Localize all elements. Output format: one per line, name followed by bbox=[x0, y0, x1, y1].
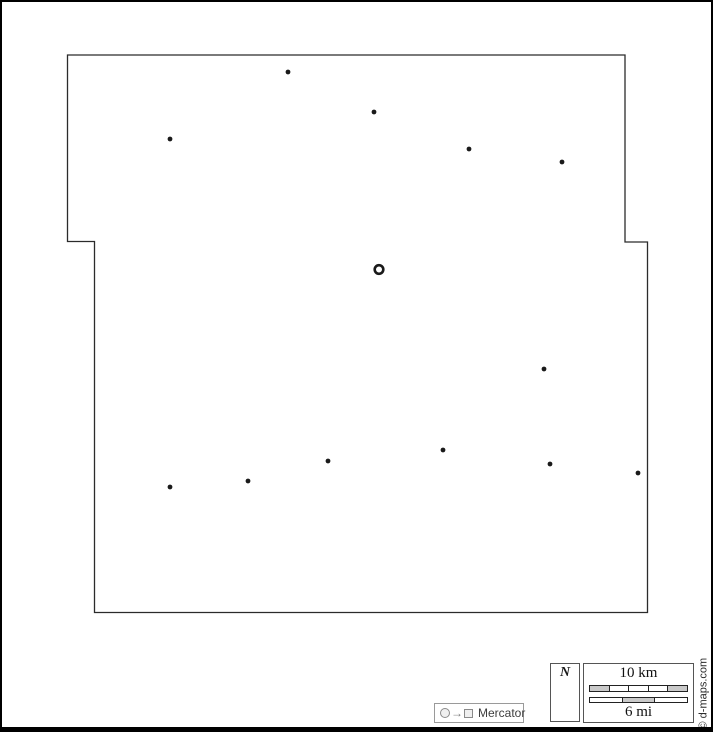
town-dot bbox=[636, 471, 641, 476]
scale-bar-segment bbox=[648, 686, 668, 691]
scale-km-bar bbox=[589, 685, 688, 692]
scale-bar-segment bbox=[654, 698, 687, 702]
county-boundary bbox=[68, 55, 648, 613]
scale-mi-label: 6 mi bbox=[584, 704, 693, 721]
compass-box: N bbox=[550, 663, 580, 722]
town-dot bbox=[372, 110, 377, 115]
compass-north-label: N bbox=[551, 665, 579, 681]
town-dot bbox=[548, 462, 553, 467]
scale-bar-segment bbox=[667, 686, 687, 691]
scale-bar-segment bbox=[609, 686, 629, 691]
town-dot bbox=[441, 448, 446, 453]
scale-bar-segment bbox=[628, 686, 648, 691]
scale-bar-segment bbox=[590, 698, 622, 702]
projection-legend: → Mercator bbox=[434, 703, 524, 723]
town-dot bbox=[168, 137, 173, 142]
scale-bar-box: 10 km 6 mi bbox=[583, 663, 694, 723]
map-canvas bbox=[2, 2, 713, 732]
town-dot bbox=[560, 160, 565, 165]
scale-km-label: 10 km bbox=[584, 665, 693, 682]
town-dot bbox=[326, 459, 331, 464]
town-dot bbox=[467, 147, 472, 152]
legend-circle-icon bbox=[440, 708, 450, 718]
town-dot bbox=[246, 479, 251, 484]
legend-arrow-icon: → bbox=[451, 707, 463, 719]
county-seat-marker bbox=[375, 265, 384, 274]
scale-bar-segment bbox=[590, 686, 609, 691]
town-dot bbox=[286, 70, 291, 75]
map-frame: N 10 km 6 mi → Mercator © d-maps.com bbox=[0, 0, 713, 732]
scale-bar-segment bbox=[622, 698, 655, 702]
scale-mi-bar bbox=[589, 697, 688, 703]
projection-label: Mercator bbox=[478, 706, 525, 720]
town-dot bbox=[168, 485, 173, 490]
legend-square-icon bbox=[464, 709, 473, 718]
dmaps-credit: © d-maps.com bbox=[698, 650, 711, 730]
town-dot bbox=[542, 367, 547, 372]
